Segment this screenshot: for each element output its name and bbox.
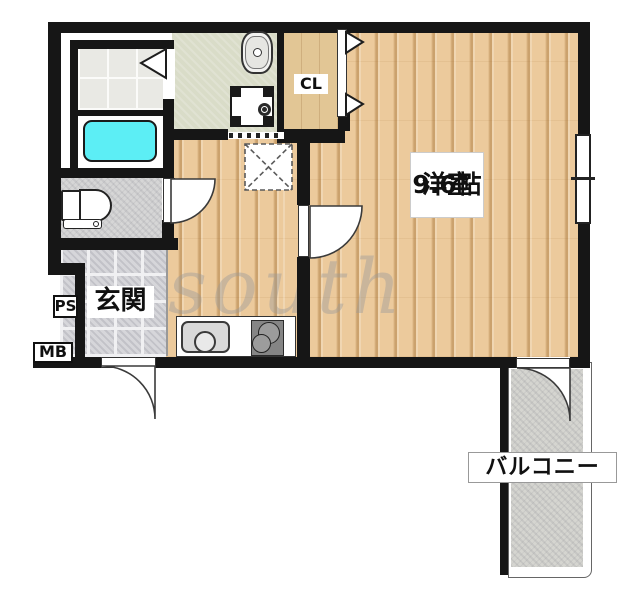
pan-corner [232, 116, 241, 125]
toilet-base-dot [93, 221, 99, 227]
toilet-bowl [79, 189, 112, 222]
label-entrance: 玄関 [87, 286, 154, 318]
label-pipe-shaft: PS [53, 295, 78, 318]
label-meter-box: MB [33, 342, 73, 363]
label-western-room: 洋室 9.6帖 [410, 152, 484, 218]
kitchen-sink-drain-icon [194, 331, 216, 353]
bathtub [83, 120, 157, 162]
pan-corner [232, 88, 241, 97]
pan-drain-icon [258, 103, 271, 116]
bath-wall-left [70, 40, 78, 178]
washroom-threshold [228, 132, 284, 139]
wall-top [52, 22, 590, 33]
stove-burner-icon [252, 334, 271, 353]
entrance-door-arc [101, 365, 157, 421]
storage-hatch-square [244, 143, 293, 191]
pan-drain-ring [261, 106, 268, 113]
toilet-wall-bottom [48, 238, 178, 250]
closet-door-icon-top [345, 31, 364, 54]
balcony-door-arc [516, 367, 572, 423]
wall-right-upper [578, 22, 590, 136]
western-room-size: 9.6帖 [412, 171, 481, 200]
room-wall-upper [297, 129, 310, 205]
bath-door-icon [140, 48, 167, 79]
wall-bottom-right-corner [570, 357, 590, 368]
closet-wall-bottom [277, 129, 345, 143]
wall-jog-vertical [75, 275, 85, 362]
bath-divider [70, 110, 172, 116]
wall-bottom-main [156, 357, 517, 368]
wall-right-lower [578, 222, 590, 365]
bath-wall-bottom [60, 168, 174, 178]
pan-corner [263, 116, 272, 125]
closet-door-icon-bottom [345, 93, 364, 116]
washer-pan [230, 86, 274, 127]
washbasin-drain-icon [253, 48, 262, 57]
washroom-wall-right [277, 22, 284, 134]
pan-corner [263, 88, 272, 97]
toilet-door-arc [170, 178, 217, 225]
label-balcony: バルコニー [468, 452, 617, 483]
washroom-wall-bottom [163, 129, 228, 140]
wall-jog-horizontal [48, 263, 85, 275]
window-crossbar [571, 177, 595, 180]
room-wall-lower [297, 257, 310, 358]
room-door-leaf [298, 205, 309, 257]
room-door-arc [309, 205, 363, 259]
floor-plan: south [0, 0, 640, 603]
label-closet: CL [294, 74, 328, 94]
